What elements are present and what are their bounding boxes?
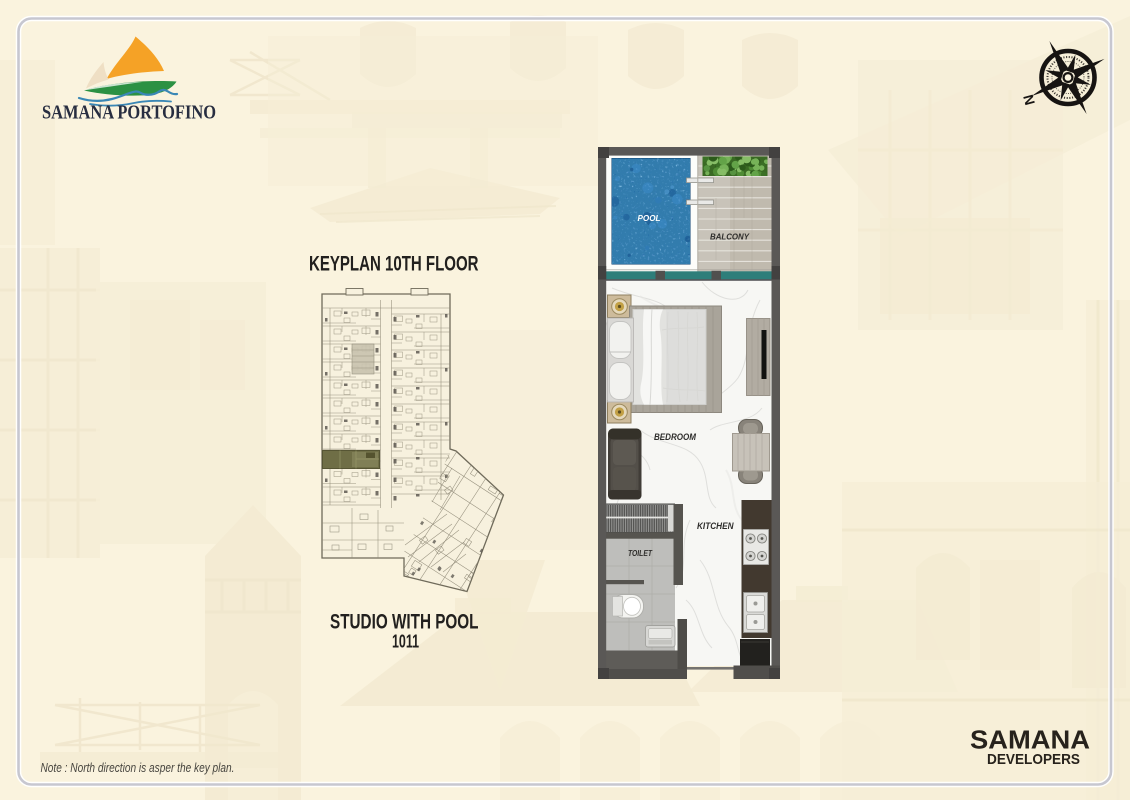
svg-text:1011: 1011 bbox=[392, 632, 419, 652]
svg-text:STUDIO WITH POOL: STUDIO WITH POOL bbox=[330, 611, 479, 634]
svg-text:BALCONY: BALCONY bbox=[710, 232, 750, 242]
svg-text:SAMANA: SAMANA bbox=[970, 725, 1090, 755]
svg-text:KEYPLAN 10TH FLOOR: KEYPLAN 10TH FLOOR bbox=[309, 253, 479, 276]
svg-text:POOL: POOL bbox=[638, 213, 661, 223]
svg-text:DEVELOPERS: DEVELOPERS bbox=[987, 751, 1080, 768]
svg-text:BEDROOM: BEDROOM bbox=[654, 432, 697, 443]
svg-text:SAMANA PORTOFINO: SAMANA PORTOFINO bbox=[42, 102, 216, 124]
svg-text:KITCHEN: KITCHEN bbox=[697, 521, 734, 532]
svg-text:Note : North direction is aspe: Note : North direction is asper the key … bbox=[41, 760, 235, 775]
svg-text:TOILET: TOILET bbox=[628, 548, 653, 558]
